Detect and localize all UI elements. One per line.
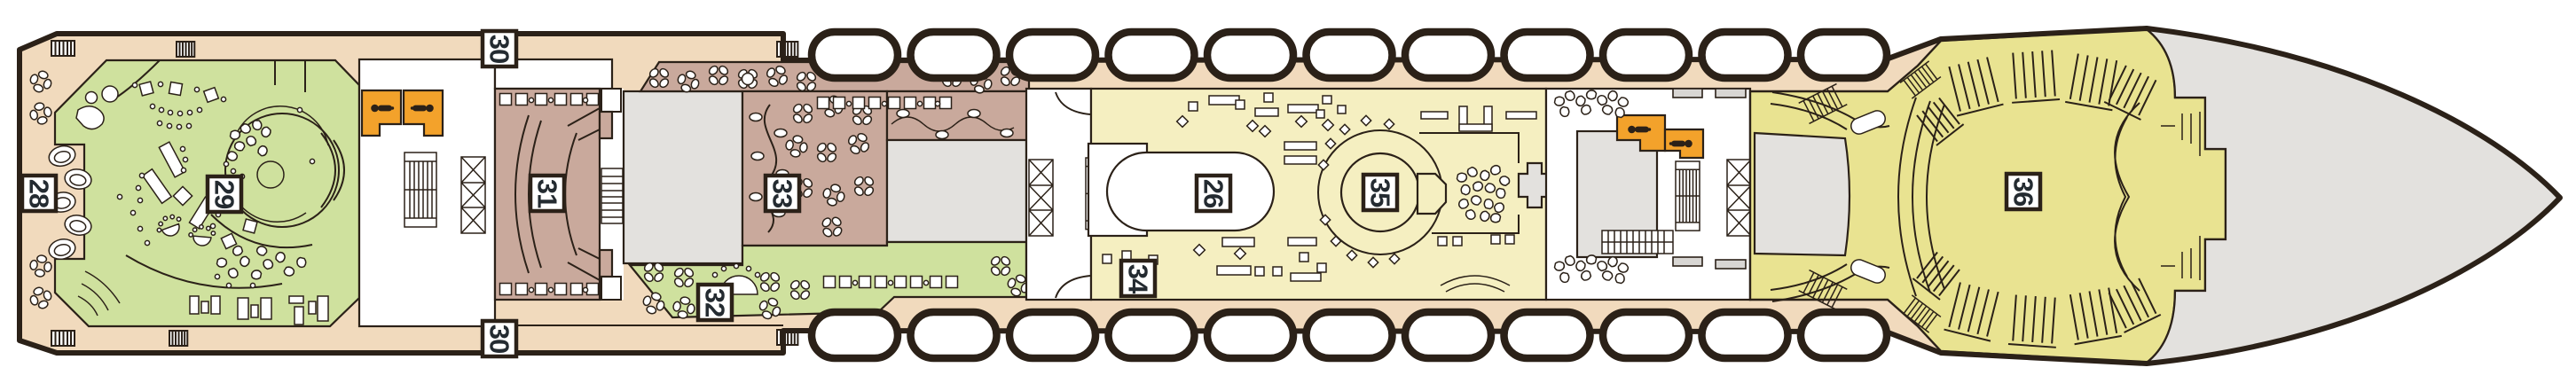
ship-deck-plan-svg: 28 29 30 31 32 33 30 34 bbox=[0, 0, 2576, 391]
venue-label-26-text: 26 bbox=[1198, 179, 1229, 208]
venue-label-30-top-text: 30 bbox=[484, 35, 515, 63]
stairs-icon bbox=[601, 168, 623, 223]
venue-label-31: 31 bbox=[530, 176, 564, 211]
venue-label-29-text: 29 bbox=[209, 180, 240, 209]
venue-label-34-text: 34 bbox=[1123, 264, 1154, 294]
lifeboat-icon bbox=[1702, 312, 1788, 358]
lifeboat-icon bbox=[1009, 312, 1096, 358]
stool-icon bbox=[86, 92, 98, 104]
venue-label-33: 33 bbox=[766, 176, 799, 211]
stairs-icon bbox=[404, 152, 436, 227]
gangway-hatch-icon bbox=[777, 42, 797, 57]
escalator-icon bbox=[1727, 160, 1751, 236]
venue-label-29: 29 bbox=[208, 176, 241, 212]
venue-label-28: 28 bbox=[22, 176, 56, 211]
lifeboat-icon bbox=[1504, 312, 1590, 358]
stairs-icon bbox=[1676, 161, 1700, 231]
deck-plan: 28 29 30 31 32 33 30 34 bbox=[0, 0, 2576, 391]
venue-label-26: 26 bbox=[1197, 176, 1230, 211]
lifeboat-icon bbox=[1307, 312, 1393, 358]
lifeboat-icon bbox=[1207, 312, 1293, 358]
lifeboat-icon bbox=[1504, 32, 1590, 78]
venue-label-32-text: 32 bbox=[700, 288, 731, 317]
escalator-icon bbox=[461, 157, 485, 233]
gangway-hatch-icon bbox=[169, 331, 187, 346]
venue-label-35: 35 bbox=[1363, 175, 1397, 210]
gangway-hatch-icon bbox=[51, 331, 75, 346]
venue-label-34: 34 bbox=[1121, 261, 1155, 296]
venue-label-33-text: 33 bbox=[767, 179, 798, 208]
lifeboat-icon bbox=[1801, 32, 1887, 78]
stool-icon bbox=[102, 86, 118, 102]
gangway-hatch-icon bbox=[177, 42, 194, 57]
lifeboat-icon bbox=[911, 312, 997, 358]
lifeboat-icon bbox=[1702, 32, 1788, 78]
gangway-hatch-icon bbox=[51, 41, 75, 56]
lifeboat-icon bbox=[911, 32, 997, 78]
lifeboat-icon bbox=[1603, 312, 1689, 358]
venue-label-31-text: 31 bbox=[532, 179, 563, 208]
lifeboat-icon bbox=[1405, 312, 1491, 358]
lifeboat-icon bbox=[1109, 312, 1195, 358]
restaurant-region bbox=[624, 60, 1032, 323]
lifeboat-icon bbox=[1009, 32, 1096, 78]
table-icon bbox=[139, 82, 153, 96]
venue-label-36-text: 36 bbox=[2008, 177, 2039, 207]
table-icon bbox=[169, 82, 182, 95]
lifeboat-icon bbox=[812, 32, 898, 78]
lifeboat-icon bbox=[1307, 32, 1393, 78]
venue-label-28-text: 28 bbox=[24, 179, 55, 208]
lifeboat-icon bbox=[1109, 32, 1195, 78]
stairs-icon bbox=[1602, 231, 1673, 254]
venue-label-32: 32 bbox=[698, 285, 732, 320]
venue-label-35-text: 35 bbox=[1365, 178, 1396, 207]
venue-label-30-bottom: 30 bbox=[483, 321, 516, 356]
galley-region bbox=[1546, 89, 1751, 300]
venue-label-30-bottom-text: 30 bbox=[484, 325, 515, 353]
lifeboat-icon bbox=[1603, 32, 1689, 78]
lifeboat-icon bbox=[1405, 32, 1491, 78]
promenade-region bbox=[1088, 89, 1546, 300]
venue-label-30-top: 30 bbox=[483, 31, 516, 66]
lifeboat-icon bbox=[812, 312, 898, 358]
escalator-icon bbox=[1029, 160, 1053, 236]
stage-house bbox=[1755, 133, 1850, 255]
lifeboat-icon bbox=[1207, 32, 1293, 78]
lifeboat-icon bbox=[1801, 312, 1887, 358]
venue-label-36: 36 bbox=[2007, 174, 2040, 209]
